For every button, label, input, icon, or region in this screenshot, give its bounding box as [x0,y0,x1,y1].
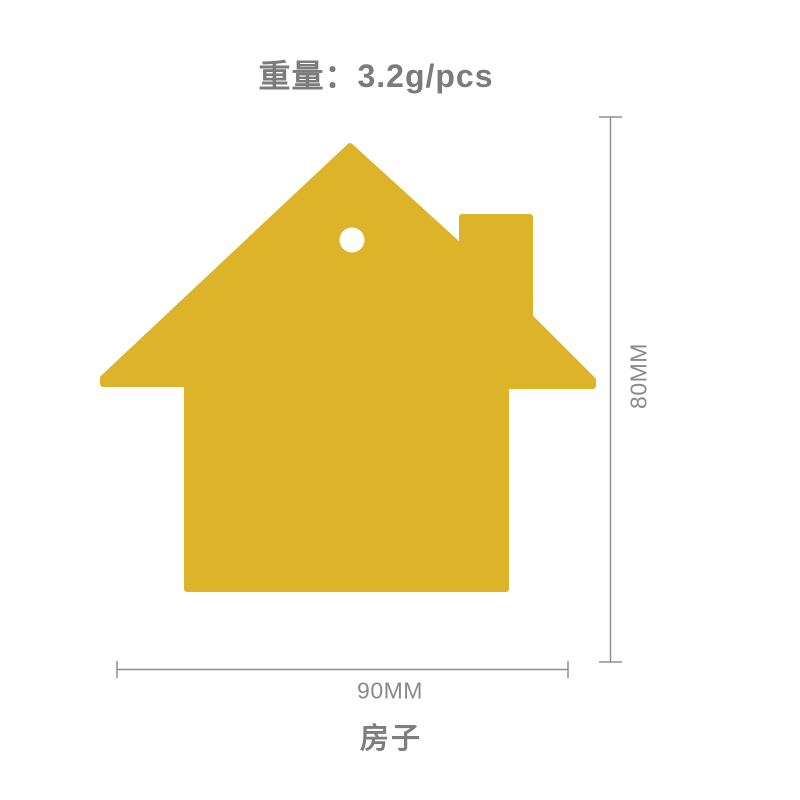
height-dimension-label: 80MM [626,343,653,409]
house-silhouette [103,146,593,589]
width-dimension-line [117,661,568,678]
width-dimension-label: 90MM [357,678,423,705]
product-spec-image: 重量：3.2g/pcs 80MM 90MM 房子 [0,0,800,800]
hanging-hole [340,228,365,253]
house-shape [103,146,593,589]
height-dimension-line [599,117,622,662]
product-name-label: 房子 [360,715,422,757]
